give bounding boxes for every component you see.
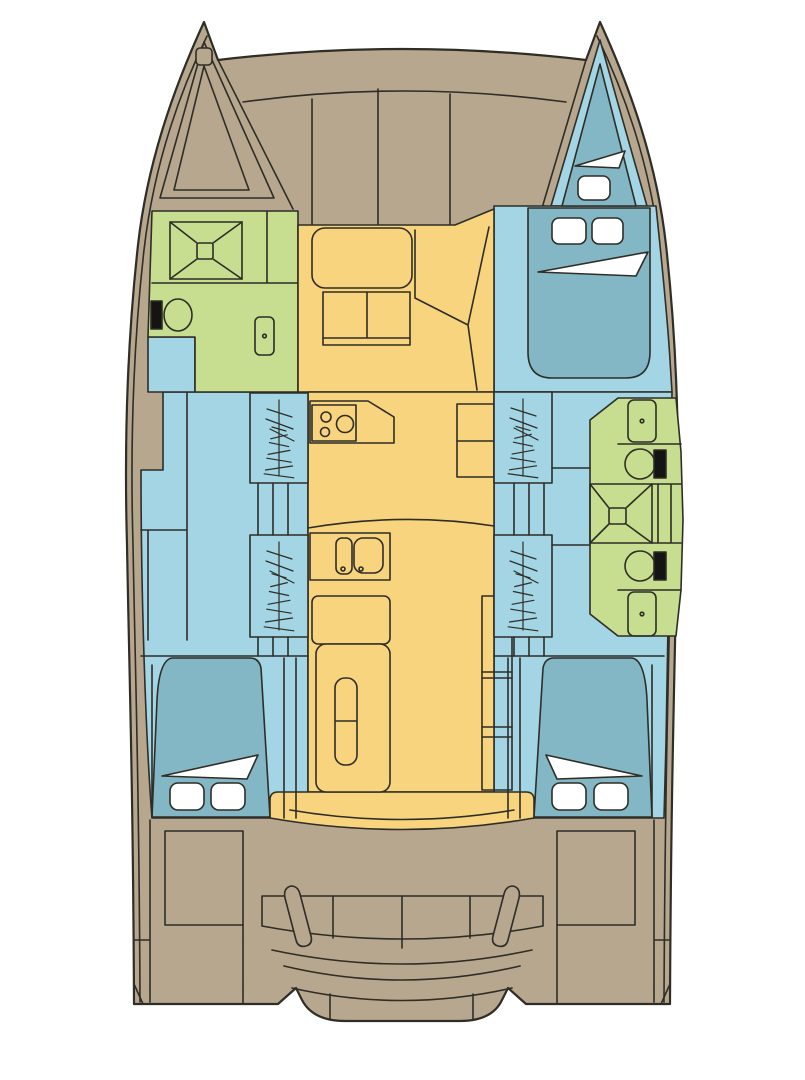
pillow	[552, 783, 586, 810]
port-forward-step-well	[148, 337, 195, 392]
nav-seat	[312, 228, 412, 288]
starboard-aft-bathrooms	[590, 398, 683, 636]
stairs-port-forward	[250, 393, 308, 483]
pillow	[170, 783, 204, 810]
toilet-tank	[654, 552, 666, 580]
hatch-window-icon	[578, 176, 610, 200]
pillow	[211, 783, 245, 810]
pillow	[594, 783, 628, 810]
stairs-port-aft	[250, 535, 308, 637]
floorplan-canvas	[0, 0, 805, 1080]
stairs-starboard-aft	[494, 535, 552, 637]
stairs-starboard-forward	[494, 392, 552, 483]
hatch-window-icon	[592, 218, 623, 244]
bathroom-floor	[590, 398, 683, 636]
toilet-tank	[151, 301, 162, 329]
plan-root	[126, 22, 683, 1021]
saloon-galley	[270, 209, 534, 830]
bow-fitting	[196, 48, 212, 65]
catamaran-floorplan	[0, 0, 805, 1080]
saloon-sofa-back	[312, 596, 390, 644]
hatch-window-icon	[552, 218, 586, 244]
aft-saloon-floor	[270, 792, 534, 830]
starboard-forward-berth	[528, 208, 650, 378]
toilet-tank	[654, 450, 666, 478]
